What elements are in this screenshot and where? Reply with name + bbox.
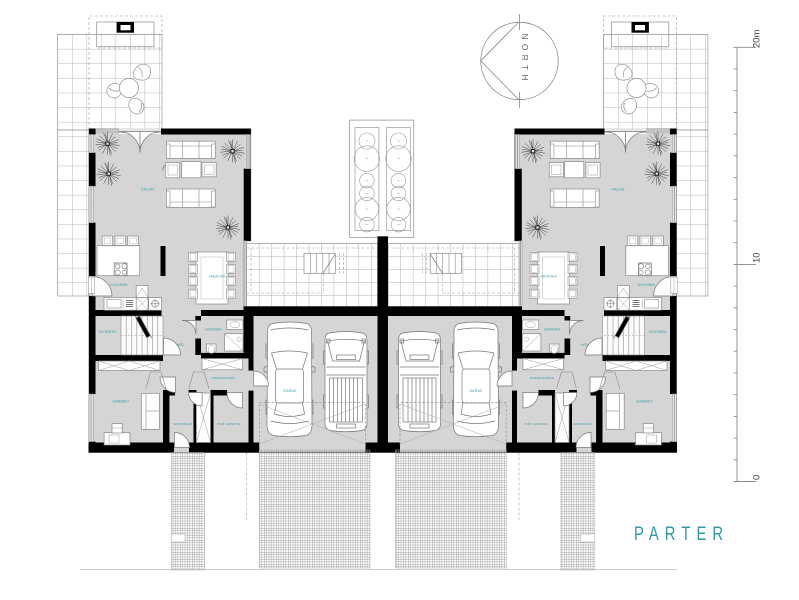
svg-text:GABINET: GABINET xyxy=(636,399,653,403)
svg-text:GARAŻ: GARAŻ xyxy=(283,388,297,393)
svg-text:SALON: SALON xyxy=(141,188,154,192)
svg-text:SALON: SALON xyxy=(612,188,625,192)
svg-text:GABINET: GABINET xyxy=(113,399,130,403)
svg-text:JADALNIA: JADALNIA xyxy=(209,275,226,279)
svg-text:SCHOWEK: SCHOWEK xyxy=(99,330,117,334)
svg-text:KUCHNIA: KUCHNIA xyxy=(110,283,128,287)
svg-text:POM. GOSPOD.: POM. GOSPOD. xyxy=(217,422,241,426)
svg-text:JADALNIA: JADALNIA xyxy=(540,275,557,279)
svg-text:KUCHNIA: KUCHNIA xyxy=(638,283,656,287)
svg-text:10: 10 xyxy=(752,252,763,263)
svg-text:ŁAZIENKA: ŁAZIENKA xyxy=(205,328,222,332)
svg-text:PRZEDSIONEK: PRZEDSIONEK xyxy=(530,376,555,380)
svg-text:HOL: HOL xyxy=(581,343,589,347)
svg-text:ŁAZIENKA: ŁAZIENKA xyxy=(544,328,561,332)
svg-text:0: 0 xyxy=(752,475,763,480)
svg-text:NORTH: NORTH xyxy=(520,34,530,85)
svg-text:WIATROŁAP: WIATROŁAP xyxy=(573,422,592,426)
svg-text:PRZEDSIONEK: PRZEDSIONEK xyxy=(212,376,237,380)
svg-text:GARAŻ: GARAŻ xyxy=(469,388,483,393)
svg-text:WIATROŁAP: WIATROŁAP xyxy=(174,422,193,426)
svg-text:POM. GOSPOD.: POM. GOSPOD. xyxy=(524,422,548,426)
svg-text:20m: 20m xyxy=(752,29,763,48)
svg-text:PARTER: PARTER xyxy=(634,523,729,544)
svg-text:SCHOWEK: SCHOWEK xyxy=(649,330,667,334)
svg-text:HOL: HOL xyxy=(177,343,185,347)
